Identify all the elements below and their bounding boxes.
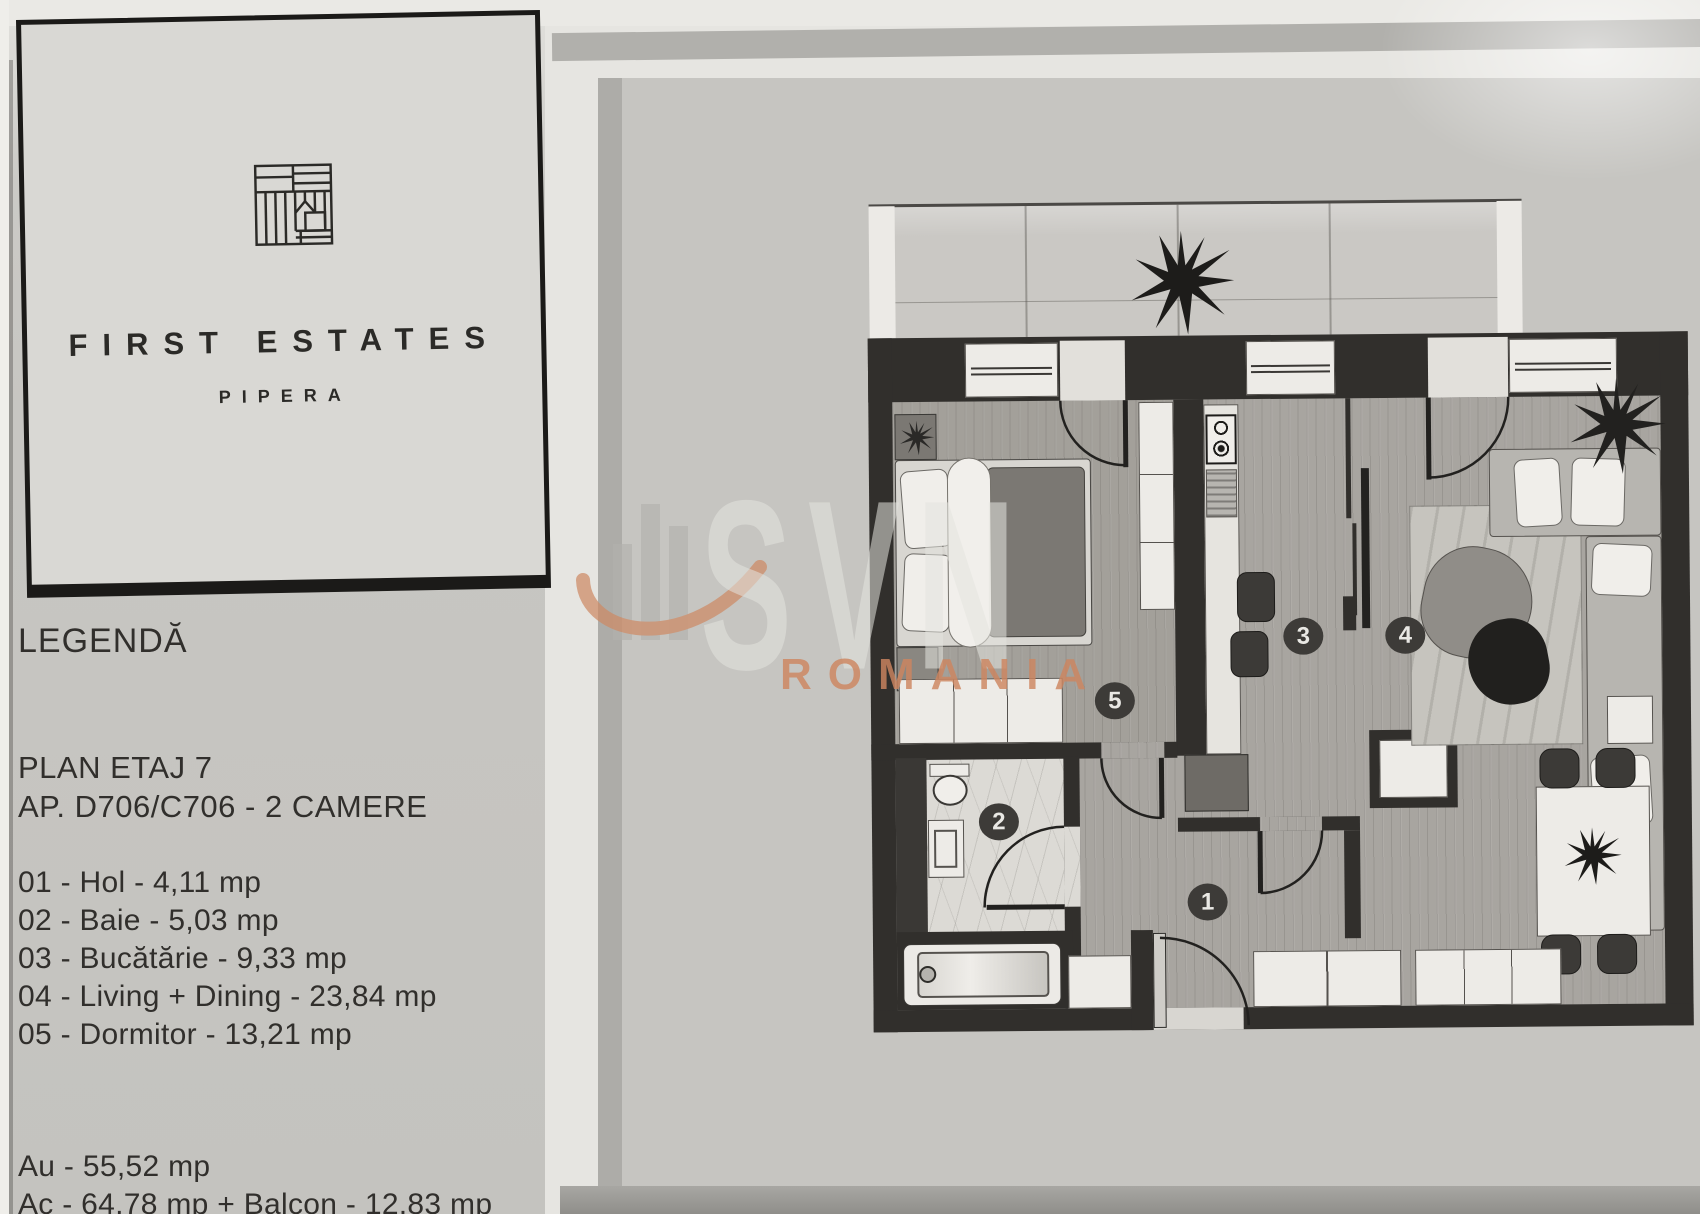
sink-basin	[934, 830, 957, 868]
brand-card: FIRST ESTATES PIPERA	[16, 10, 551, 598]
legend-apartment: AP. D706/C706 - 2 CAMERE	[18, 789, 427, 825]
window-bedroom	[965, 343, 1058, 398]
room-number: 5	[1108, 687, 1122, 715]
window-glazing	[971, 367, 1053, 376]
balcony-post-right	[1497, 201, 1523, 333]
sofa-pillow	[1591, 543, 1653, 598]
dining-chair	[1595, 748, 1635, 788]
legend-room-bucatarie: 03 - Bucătărie - 9,33 mp	[18, 942, 347, 976]
kitchen-sink	[1206, 469, 1237, 517]
hall-niche	[1068, 955, 1131, 1009]
entrance-pillar	[1131, 930, 1154, 1030]
legend-room-living: 04 - Living + Dining - 23,84 mp	[18, 980, 437, 1014]
balcony-door-threshold-living	[1428, 337, 1509, 398]
side-table	[1607, 696, 1653, 744]
wall-hall-living	[1344, 830, 1361, 938]
dining-chair	[1539, 748, 1579, 788]
room-badge-living: 4	[1385, 617, 1425, 654]
table-plant-icon	[1562, 826, 1623, 887]
entrance-door-leaf	[1153, 933, 1167, 1028]
legend-area-built: Ac - 64,78 mp + Balcon - 12,83 mp	[18, 1188, 492, 1214]
brand-name: FIRST ESTATES	[27, 319, 542, 365]
bathroom-duct-wall	[895, 758, 928, 940]
brand-location: PIPERA	[28, 381, 542, 412]
balcony-plant-icon	[1127, 223, 1236, 342]
room-number: 3	[1297, 622, 1311, 650]
window-kitchen	[1246, 340, 1335, 395]
bathtub-faucet	[919, 966, 936, 983]
first-estates-logo	[252, 161, 336, 249]
window-glazing	[1515, 362, 1610, 371]
kitchen-chair	[1237, 572, 1275, 622]
room-number: 1	[1201, 888, 1215, 916]
wardrobe-tall	[1138, 402, 1175, 610]
living-plant-icon	[1566, 375, 1667, 476]
wall-bedroom-kitchen	[1173, 400, 1206, 756]
hall-closet-row	[1253, 950, 1401, 1007]
living-closet-row	[1415, 948, 1561, 1005]
bedroom-door-opening	[1101, 742, 1164, 759]
legend-plan-floor: PLAN ETAJ 7	[18, 750, 212, 786]
brochure-page: 1 2 3 4 5 SVN ROMANIA	[0, 0, 1700, 1214]
sofa-pillow	[1513, 457, 1563, 528]
legend-title: LEGENDĂ	[18, 622, 188, 661]
balcony-post-left	[869, 206, 896, 338]
kitchen-chair	[1230, 631, 1268, 677]
bathroom-door-opening	[1064, 827, 1081, 907]
legend-area-useful: Au - 55,52 mp	[18, 1150, 210, 1184]
kitchen-door-opening	[1260, 817, 1322, 832]
legend-room-baie: 02 - Baie - 5,03 mp	[18, 904, 279, 938]
romania-watermark-text: ROMANIA	[780, 650, 1102, 700]
legend-room-hol: 01 - Hol - 4,11 mp	[18, 866, 261, 900]
living-storage-box	[1379, 739, 1448, 798]
balcony-door-threshold-bedroom	[1060, 340, 1126, 401]
kitchen-base-cabinet	[1184, 754, 1248, 812]
photo-bottom-shadow	[560, 1186, 1700, 1214]
window-glazing	[1251, 365, 1329, 374]
room-number: 2	[992, 808, 1006, 836]
room-number: 4	[1399, 621, 1413, 649]
legend-room-dormitor: 05 - Dormitor - 13,21 mp	[18, 1018, 352, 1052]
room-badge-baie: 2	[979, 803, 1019, 840]
kitchen-living-glass-wall	[1345, 398, 1351, 518]
kitchen-living-wall-stub	[1343, 596, 1356, 630]
entrance-opening	[1154, 1007, 1244, 1030]
room-badge-bucatarie: 3	[1283, 617, 1323, 654]
dining-chair	[1597, 934, 1637, 974]
closet-division	[1254, 951, 1400, 1006]
bathtub-basin	[917, 951, 1049, 998]
toilet-bowl	[933, 775, 968, 806]
tv-panel	[1361, 468, 1370, 628]
stove	[1205, 414, 1236, 464]
room-badge-hol: 1	[1187, 883, 1227, 920]
